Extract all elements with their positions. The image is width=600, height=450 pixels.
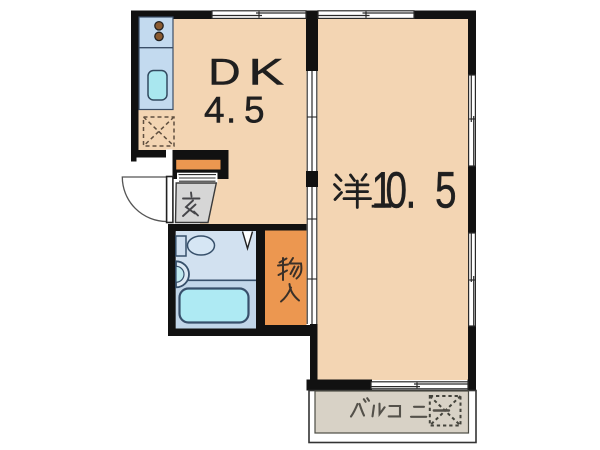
svg-text:4: 4 [204,90,225,131]
svg-text:5: 5 [244,90,265,131]
svg-text:0: 0 [386,161,408,218]
svg-text:5: 5 [435,161,457,218]
svg-text:.: . [226,90,236,131]
svg-text:K: K [248,51,284,93]
svg-text:.: . [406,161,417,218]
svg-text:D: D [208,51,240,92]
